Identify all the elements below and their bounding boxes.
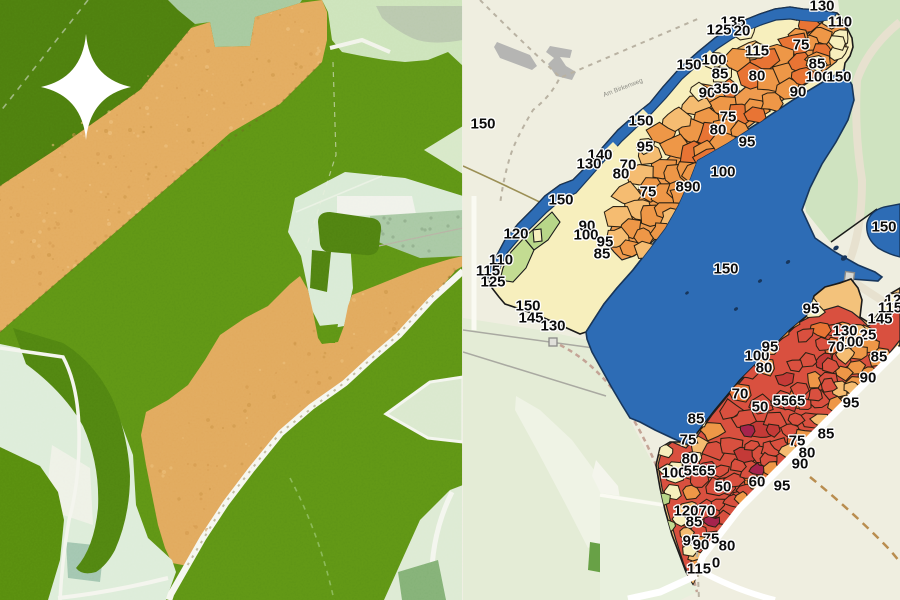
svg-text:90: 90 (792, 456, 809, 473)
svg-text:890: 890 (675, 179, 700, 196)
svg-text:80: 80 (710, 122, 727, 139)
svg-text:130: 130 (576, 156, 601, 173)
svg-text:150: 150 (628, 113, 653, 130)
svg-text:110: 110 (828, 14, 852, 31)
svg-text:150: 150 (826, 69, 851, 86)
svg-text:95: 95 (762, 339, 779, 356)
svg-text:125: 125 (480, 274, 505, 291)
svg-text:90: 90 (693, 537, 710, 554)
svg-text:85: 85 (594, 246, 611, 263)
svg-text:90: 90 (790, 84, 807, 101)
svg-text:115: 115 (687, 561, 711, 578)
svg-text:100: 100 (573, 227, 598, 244)
svg-text:120: 120 (673, 503, 698, 520)
svg-text:80: 80 (749, 68, 766, 85)
svg-text:50: 50 (715, 479, 732, 496)
svg-text:120: 120 (503, 226, 528, 243)
svg-text:95: 95 (843, 395, 860, 412)
svg-text:75: 75 (793, 37, 810, 54)
svg-text:95: 95 (637, 139, 654, 156)
svg-text:80: 80 (613, 166, 630, 183)
svg-text:70: 70 (732, 386, 749, 403)
svg-text:85: 85 (871, 349, 888, 366)
svg-text:145: 145 (867, 311, 892, 328)
svg-text:85: 85 (688, 411, 705, 428)
svg-text:115: 115 (745, 43, 769, 60)
svg-text:95: 95 (739, 134, 756, 151)
svg-text:90: 90 (860, 370, 877, 387)
svg-text:80: 80 (719, 538, 736, 555)
svg-text:100: 100 (710, 164, 735, 181)
svg-text:350: 350 (713, 81, 738, 98)
svg-text:95: 95 (774, 478, 791, 495)
svg-text:50: 50 (752, 399, 769, 416)
svg-text:130: 130 (540, 318, 565, 335)
svg-text:70: 70 (699, 503, 716, 520)
svg-text:65: 65 (699, 463, 716, 480)
svg-text:95: 95 (803, 301, 820, 318)
svg-text:150: 150 (676, 57, 701, 74)
svg-text:130: 130 (809, 0, 834, 15)
svg-text:150: 150 (470, 116, 495, 133)
svg-text:85: 85 (818, 426, 835, 443)
svg-text:125: 125 (706, 22, 731, 39)
svg-text:150: 150 (548, 192, 573, 209)
svg-text:75: 75 (680, 432, 697, 449)
svg-text:70: 70 (828, 339, 845, 356)
svg-text:20: 20 (734, 23, 751, 40)
svg-text:60: 60 (749, 474, 766, 491)
svg-text:65: 65 (789, 393, 806, 410)
svg-text:80: 80 (756, 360, 773, 377)
svg-text:150: 150 (713, 261, 738, 278)
svg-text:0: 0 (712, 555, 720, 572)
svg-text:150: 150 (871, 219, 896, 236)
svg-text:80: 80 (682, 451, 699, 468)
svg-text:55: 55 (773, 393, 790, 410)
svg-text:75: 75 (640, 184, 657, 201)
